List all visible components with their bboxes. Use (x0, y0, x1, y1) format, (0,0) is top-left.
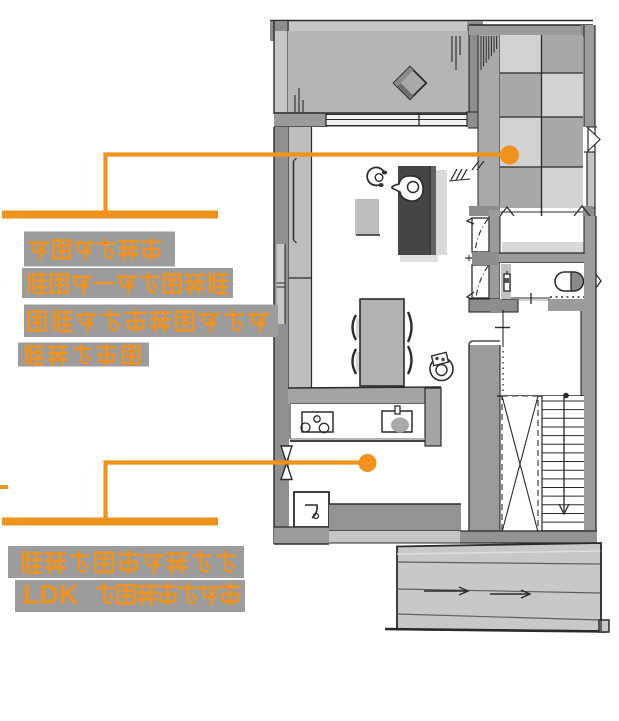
svg-text:LDK: LDK (23, 580, 79, 610)
